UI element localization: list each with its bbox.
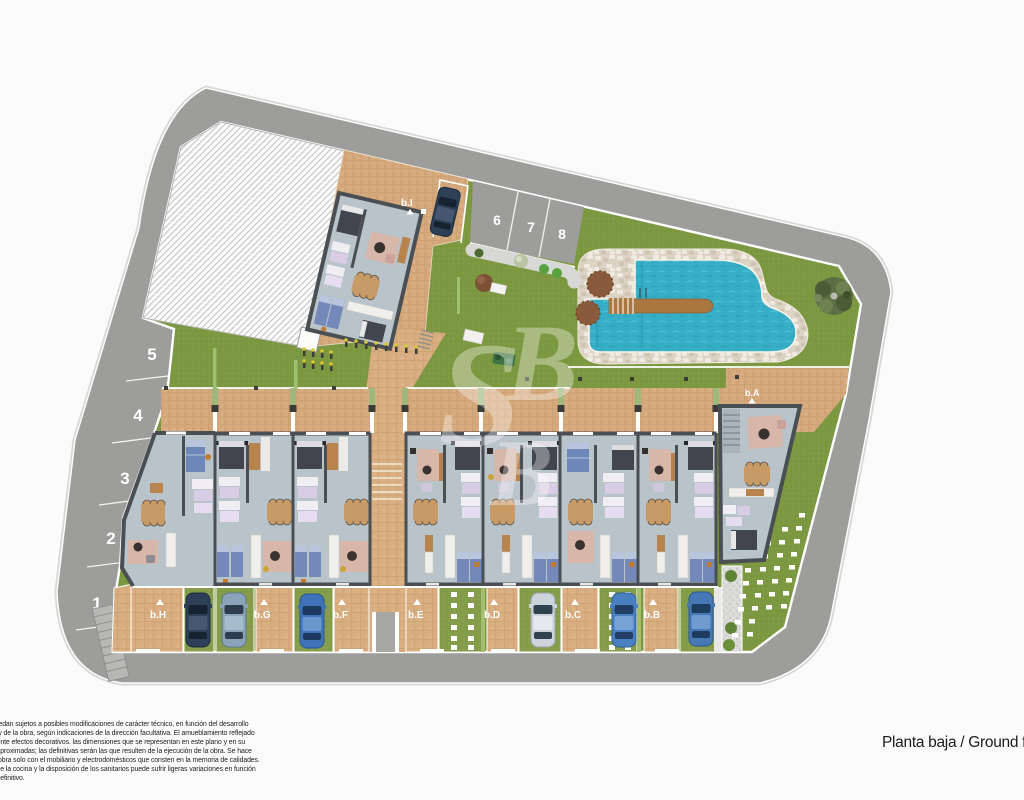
svg-text:to y de la obra, según indicac: to y de la obra, según indicaciones de l… (0, 730, 255, 737)
svg-text:b.E: b.E (408, 610, 424, 621)
svg-text:b.D: b.D (484, 610, 500, 621)
svg-text:b.C: b.C (565, 610, 581, 621)
svg-text:e definitivo.: e definitivo. (0, 775, 25, 782)
svg-text:B: B (489, 420, 553, 526)
svg-text:n aproximadas; las definitivas: n aproximadas; las definitivas serán las… (0, 748, 252, 755)
svg-text:8: 8 (558, 226, 566, 242)
svg-text:5: 5 (147, 345, 156, 364)
svg-text:2: 2 (106, 529, 115, 548)
svg-text:o de la cocina y la disposició: o de la cocina y la disposición de los s… (0, 766, 256, 773)
svg-text:b.F: b.F (333, 610, 348, 621)
svg-text:3: 3 (120, 469, 129, 488)
svg-text:B: B (503, 302, 578, 424)
svg-text:quedan sujetos a posibles modi: quedan sujetos a posibles modificaciones… (0, 721, 249, 728)
svg-text:Planta baja / Ground floor: Planta baja / Ground floor (882, 734, 1024, 751)
svg-text:6: 6 (493, 212, 501, 228)
svg-text:b.I: b.I (401, 198, 413, 209)
svg-text:mente efectos decorativos. las: mente efectos decorativos. las dimension… (0, 739, 245, 746)
svg-text:7: 7 (527, 219, 535, 235)
svg-text:b.G: b.G (254, 610, 271, 621)
svg-text:b.H: b.H (150, 610, 166, 621)
svg-text:b.B: b.B (644, 610, 660, 621)
svg-text:la obra solo con el mobiliario: la obra solo con el mobiliario y electro… (0, 757, 260, 764)
svg-text:b.A: b.A (745, 388, 760, 398)
svg-text:4: 4 (133, 406, 143, 425)
